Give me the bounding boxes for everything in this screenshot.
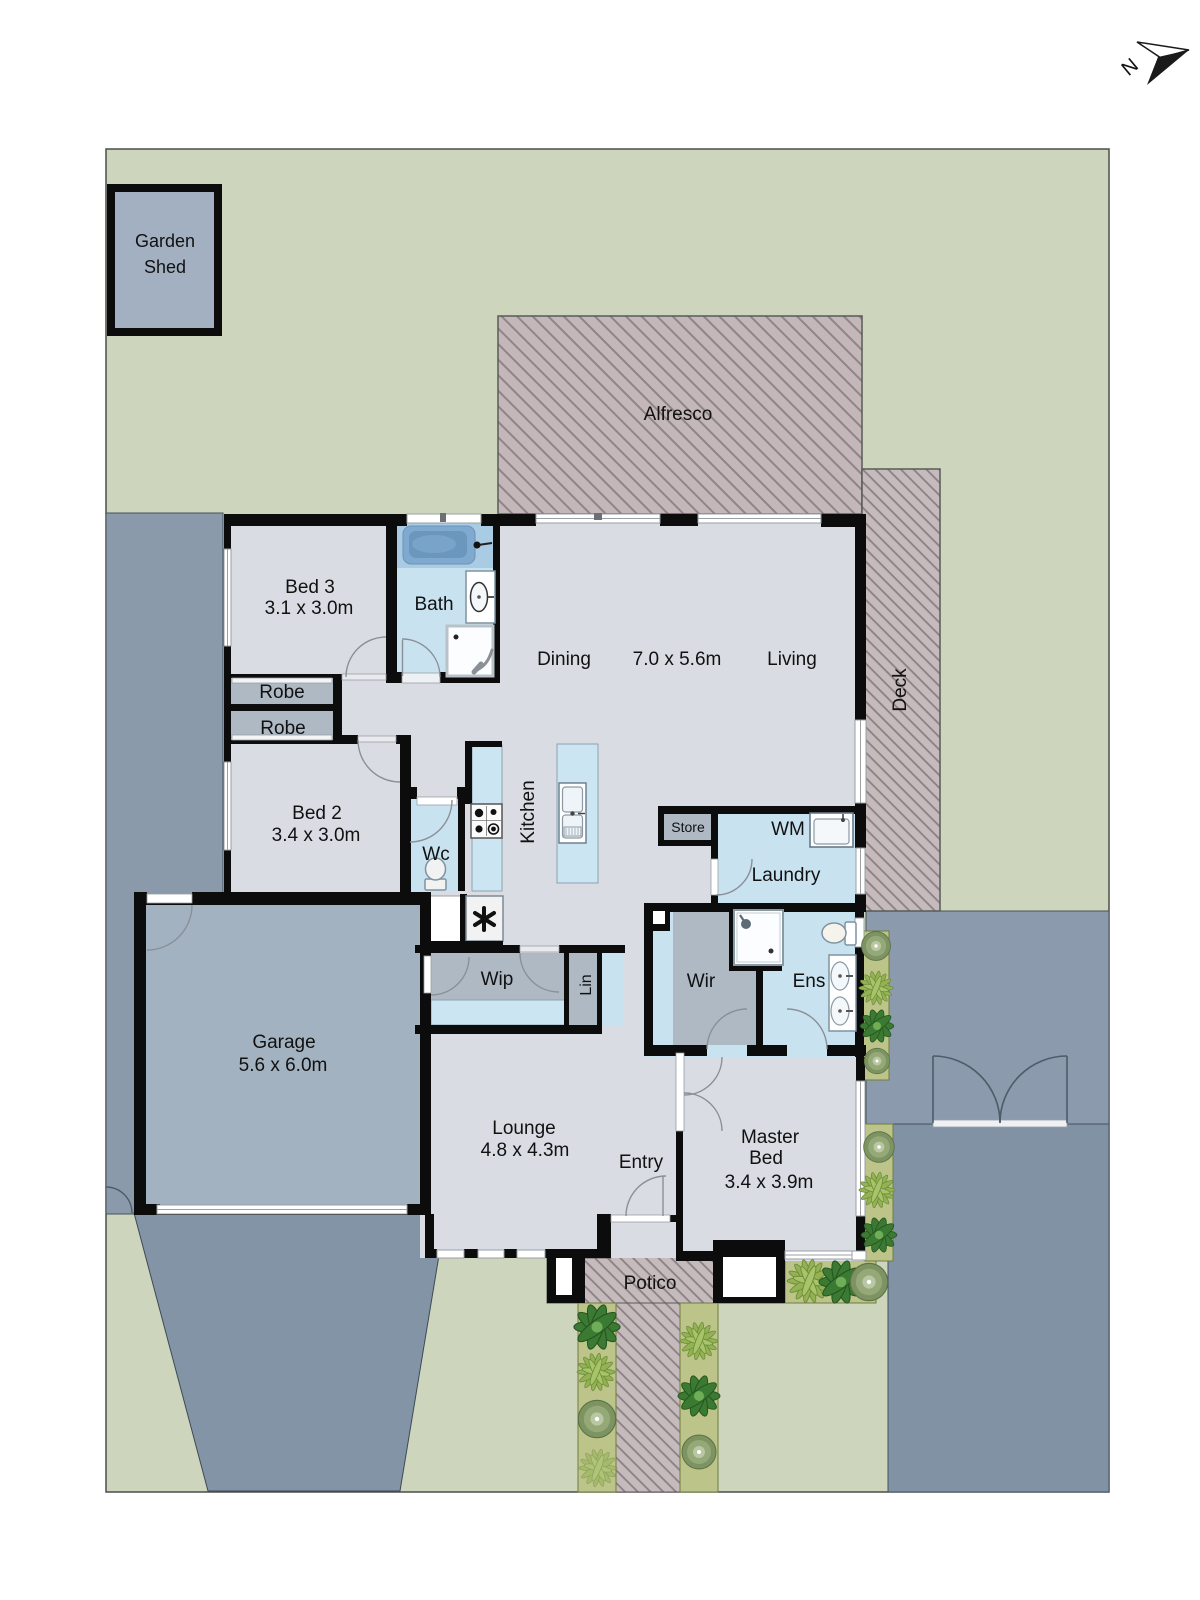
svg-text:Ens: Ens: [793, 971, 826, 992]
svg-text:Store: Store: [671, 819, 705, 835]
svg-text:Bed: Bed: [749, 1148, 783, 1169]
svg-text:3.4 x 3.0m: 3.4 x 3.0m: [272, 825, 361, 846]
svg-text:Robe: Robe: [259, 682, 304, 703]
svg-text:3.4 x 3.9m: 3.4 x 3.9m: [725, 1172, 814, 1193]
svg-text:Deck: Deck: [890, 668, 911, 712]
svg-text:Lin: Lin: [578, 974, 595, 995]
svg-text:3.1 x 3.0m: 3.1 x 3.0m: [265, 598, 354, 619]
svg-text:4.8 x 4.3m: 4.8 x 4.3m: [481, 1140, 570, 1161]
svg-text:Robe: Robe: [260, 718, 305, 739]
svg-text:Wc: Wc: [422, 844, 449, 865]
svg-text:Bath: Bath: [414, 594, 453, 615]
svg-text:Garage: Garage: [252, 1032, 315, 1053]
svg-text:Laundry: Laundry: [752, 865, 821, 886]
svg-text:Wip: Wip: [481, 969, 514, 990]
svg-text:Bed 2: Bed 2: [292, 803, 342, 824]
svg-text:Lounge: Lounge: [492, 1118, 555, 1139]
svg-text:Garden: Garden: [135, 231, 195, 251]
svg-text:Kitchen: Kitchen: [518, 780, 539, 843]
svg-text:Wir: Wir: [687, 971, 716, 992]
svg-text:Alfresco: Alfresco: [644, 404, 713, 425]
svg-text:Dining: Dining: [537, 649, 591, 670]
svg-text:WM: WM: [771, 819, 805, 840]
svg-text:Living: Living: [767, 649, 817, 670]
svg-text:5.6 x 6.0m: 5.6 x 6.0m: [239, 1055, 328, 1076]
svg-text:Shed: Shed: [144, 257, 186, 277]
svg-text:7.0 x 5.6m: 7.0 x 5.6m: [633, 649, 722, 670]
svg-text:Bed 3: Bed 3: [285, 577, 335, 598]
svg-text:Master: Master: [741, 1127, 800, 1148]
svg-text:Potico: Potico: [624, 1273, 677, 1294]
svg-text:Entry: Entry: [619, 1152, 664, 1173]
